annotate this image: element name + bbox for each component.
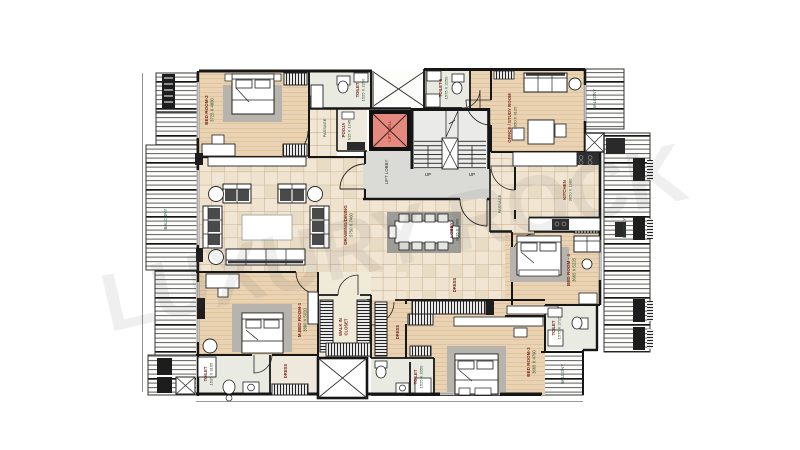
svg-text:1575 X 2250: 1575 X 2250	[444, 76, 449, 99]
svg-text:TOILET-5: TOILET-5	[438, 78, 443, 97]
svg-text:3665 X 4790: 3665 X 4790	[532, 349, 537, 373]
svg-text:1525 X 2250: 1525 X 2250	[361, 78, 366, 101]
svg-text:3725 X 4880: 3725 X 4880	[210, 97, 215, 121]
svg-text:BED ROOM-2: BED ROOM-2	[204, 95, 209, 125]
svg-text:915 X 1245: 915 X 1245	[347, 119, 352, 140]
svg-text:DRESS: DRESS	[395, 325, 400, 340]
svg-text:TOILET: TOILET	[203, 366, 208, 381]
svg-text:LIFT WELL: LIFT WELL	[387, 120, 392, 142]
svg-text:BALCONY: BALCONY	[560, 364, 565, 384]
svg-text:BALCONY: BALCONY	[592, 89, 597, 109]
svg-text:CLOSET: CLOSET	[344, 318, 349, 335]
svg-text:WALK IN: WALK IN	[338, 318, 343, 336]
svg-text:DRESS: DRESS	[452, 278, 457, 293]
svg-text:1525 X 2050: 1525 X 2050	[419, 365, 424, 388]
svg-text:BED ROOM - 4: BED ROOM - 4	[566, 254, 571, 286]
svg-text:1525 X 3165: 1525 X 3165	[209, 362, 214, 385]
svg-text:3890 X 5020: 3890 X 5020	[303, 307, 308, 331]
svg-text:BED ROOM-3: BED ROOM-3	[526, 347, 531, 377]
svg-text:1575 X 2715: 1575 X 2715	[557, 316, 562, 339]
svg-text:BALCONY: BALCONY	[163, 208, 168, 229]
svg-text:3050 X 4125: 3050 X 4125	[513, 106, 518, 129]
svg-text:TOILET: TOILET	[551, 320, 556, 335]
svg-text:UP: UP	[425, 172, 431, 177]
svg-text:LIFT LOBBY: LIFT LOBBY	[384, 160, 389, 185]
svg-text:DRESS: DRESS	[283, 364, 288, 379]
svg-text:3665 X 5225: 3665 X 5225	[572, 257, 577, 281]
svg-text:POOJA: POOJA	[341, 123, 346, 138]
svg-text:TOILET: TOILET	[355, 82, 360, 97]
svg-text:PASSAGE: PASSAGE	[322, 118, 327, 137]
svg-text:OFFICE / STUDY ROOM: OFFICE / STUDY ROOM	[507, 93, 512, 143]
svg-text:TOILET: TOILET	[413, 369, 418, 384]
svg-text:M.BED ROOM-1: M.BED ROOM-1	[297, 302, 302, 337]
